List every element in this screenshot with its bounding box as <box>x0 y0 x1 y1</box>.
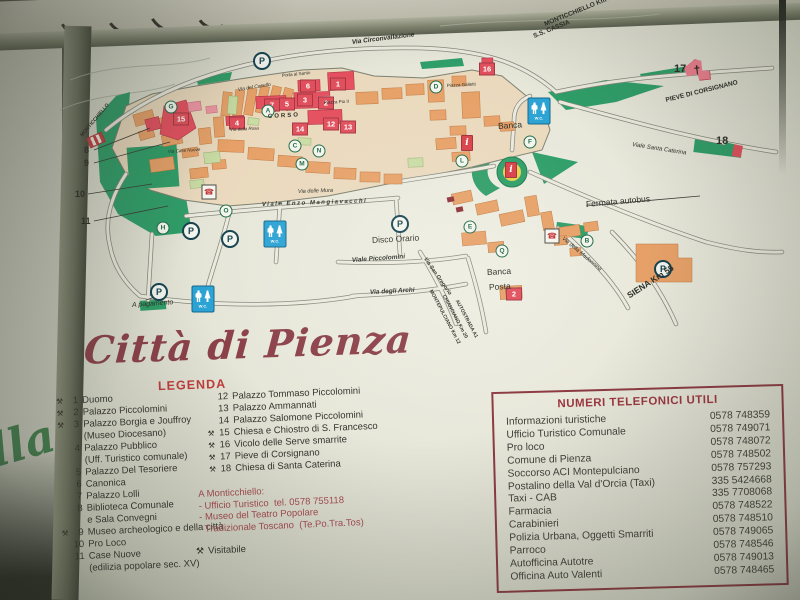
phone-entry-number: 0578 748465 <box>714 564 774 579</box>
legend-item-number: 3 <box>66 419 79 432</box>
visitable-icon: ⚒ <box>196 546 205 557</box>
phone-rows: Informazioni turistiche0578 748359Uffici… <box>506 409 775 584</box>
visitable-icon: ⚒ <box>208 440 217 452</box>
visitable-icon: ⚒ <box>57 408 66 420</box>
legend-item-number: 6 <box>69 479 82 492</box>
legend-item-number: 16 <box>217 439 230 452</box>
legend-item-number: 14 <box>216 415 229 428</box>
legend-item-number: 5 <box>68 467 81 480</box>
legend-item-number: 13 <box>215 403 228 416</box>
visitable-icon: ⚒ <box>208 428 217 440</box>
sign-photo: † Via CirconvallazioneMONTICCHIELLO Km 1… <box>0 0 800 600</box>
legend-item-number: 18 <box>218 463 231 476</box>
legend-item-number: 2 <box>65 407 78 420</box>
legend-item-number: 7 <box>69 491 82 504</box>
monticchiello-note: A Monticchiello:- Ufficio Turistico tel.… <box>198 482 364 535</box>
visitable-label: Visitabile <box>208 544 246 557</box>
phone-numbers-box: NUMERI TELEFONICI UTILI Informazioni tur… <box>491 384 788 593</box>
phone-box-title: NUMERI TELEFONICI UTILI <box>505 392 769 411</box>
legend-item-number: 4 <box>67 443 80 456</box>
visitable-icon: ⚒ <box>62 528 71 540</box>
legend-area: Città di Pienza LEGENDA ⚒1Duomo⚒2Palazzo… <box>0 0 800 600</box>
sign-title: Città di Pienza <box>83 316 414 373</box>
legend-item-number: 15 <box>216 427 229 440</box>
legend-item-number: 17 <box>218 451 231 464</box>
visitable-note: ⚒ Visitabile <box>196 544 246 557</box>
visitable-icon: ⚒ <box>57 420 66 432</box>
visitable-icon: ⚒ <box>209 452 218 464</box>
visitable-icon: ⚒ <box>56 396 65 408</box>
legend-item-number: 11 <box>72 551 85 564</box>
legend-item-number: 9 <box>71 527 84 540</box>
legend-item-number: 1 <box>65 395 78 408</box>
legend-item-number: 10 <box>71 539 84 552</box>
legend-item-number: 8 <box>70 503 83 516</box>
legend-column-right: 12Palazzo Tommaso Piccolomini13Palazzo A… <box>206 384 399 476</box>
legend-item-number: 12 <box>215 391 228 404</box>
visitable-icon: ⚒ <box>209 464 218 476</box>
